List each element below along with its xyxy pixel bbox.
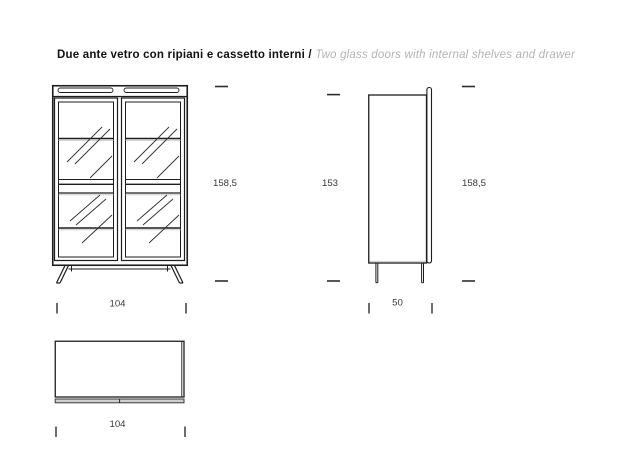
side-carcass-outline	[369, 95, 427, 263]
dim-front-height-label: 158,5	[213, 178, 237, 189]
front-header-pill-right	[124, 88, 179, 93]
glass-hatch-right-upper	[134, 127, 179, 178]
side-door-edge	[427, 88, 432, 264]
side-legs	[376, 263, 424, 283]
side-view	[369, 88, 432, 283]
glass-hatch-right-lower	[137, 195, 179, 243]
front-left-leg	[57, 266, 69, 284]
dim-plan-width-label: 104	[109, 419, 126, 430]
plan-view	[55, 341, 184, 403]
dim-side-depth-label: 50	[392, 298, 403, 309]
page: Due ante vetro con ripiani e cassetto in…	[0, 0, 618, 471]
dim-carcass-height-label: 153	[322, 178, 338, 189]
dim-front-width-label: 104	[109, 299, 126, 310]
glass-hatch-left-lower	[70, 195, 112, 243]
front-cabinet-outline	[53, 86, 188, 266]
front-header-pill-left	[58, 88, 113, 93]
front-base-and-legs	[57, 266, 184, 284]
technical-drawing-canvas: 158,5 153 158,5 104 50 104	[0, 0, 618, 471]
front-right-leg	[171, 266, 183, 284]
glass-hatch-left-upper	[67, 127, 112, 178]
dimension-marks	[56, 87, 475, 438]
dim-side-height-label: 158,5	[462, 178, 486, 189]
front-view	[53, 86, 188, 283]
plan-outline	[55, 341, 184, 397]
